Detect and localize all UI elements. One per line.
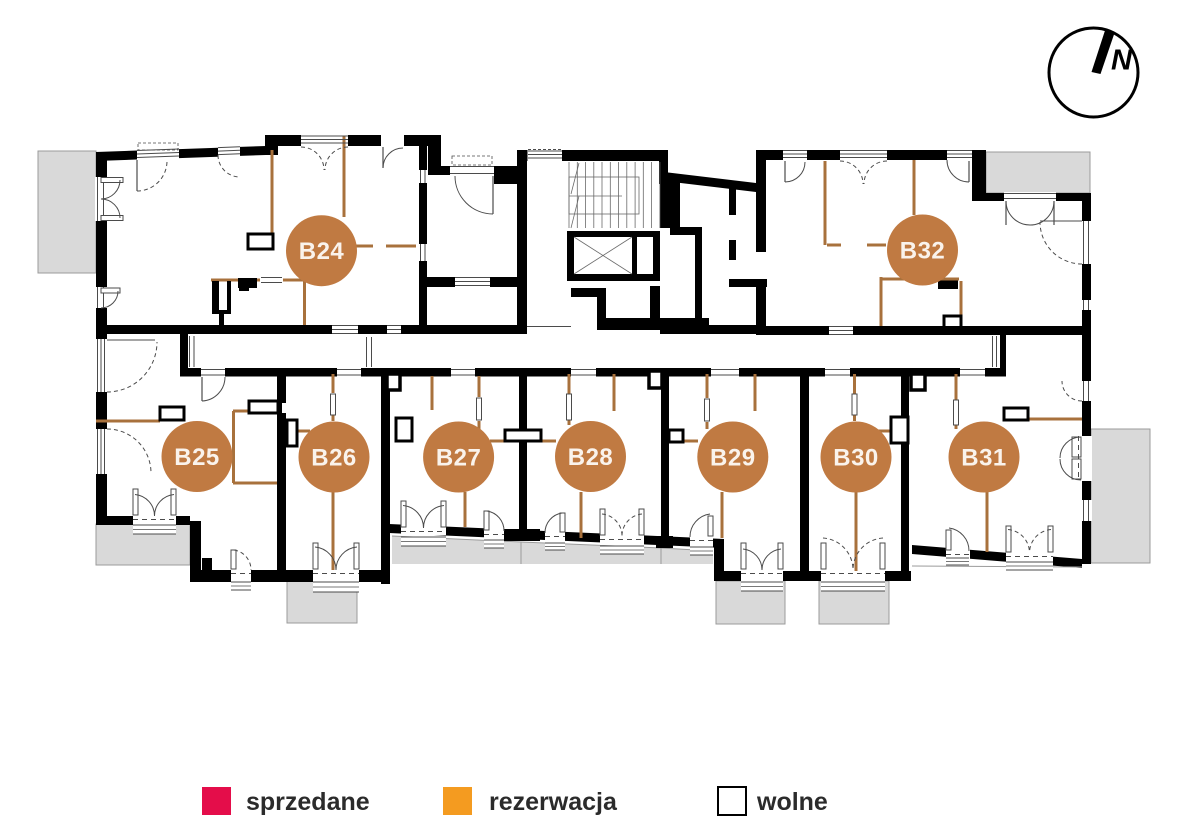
svg-text:B30: B30 bbox=[833, 445, 879, 472]
svg-text:B29: B29 bbox=[710, 445, 756, 472]
svg-text:B31: B31 bbox=[961, 445, 1007, 472]
svg-text:B26: B26 bbox=[311, 445, 357, 472]
svg-text:sprzedane: sprzedane bbox=[246, 788, 370, 816]
svg-text:B24: B24 bbox=[299, 238, 345, 265]
svg-text:B32: B32 bbox=[900, 238, 946, 265]
svg-text:wolne: wolne bbox=[756, 788, 828, 816]
svg-text:N: N bbox=[1111, 45, 1133, 77]
svg-text:B25: B25 bbox=[174, 444, 220, 471]
svg-text:B28: B28 bbox=[568, 444, 614, 471]
svg-text:B27: B27 bbox=[436, 445, 482, 472]
svg-text:rezerwacja: rezerwacja bbox=[489, 788, 618, 816]
